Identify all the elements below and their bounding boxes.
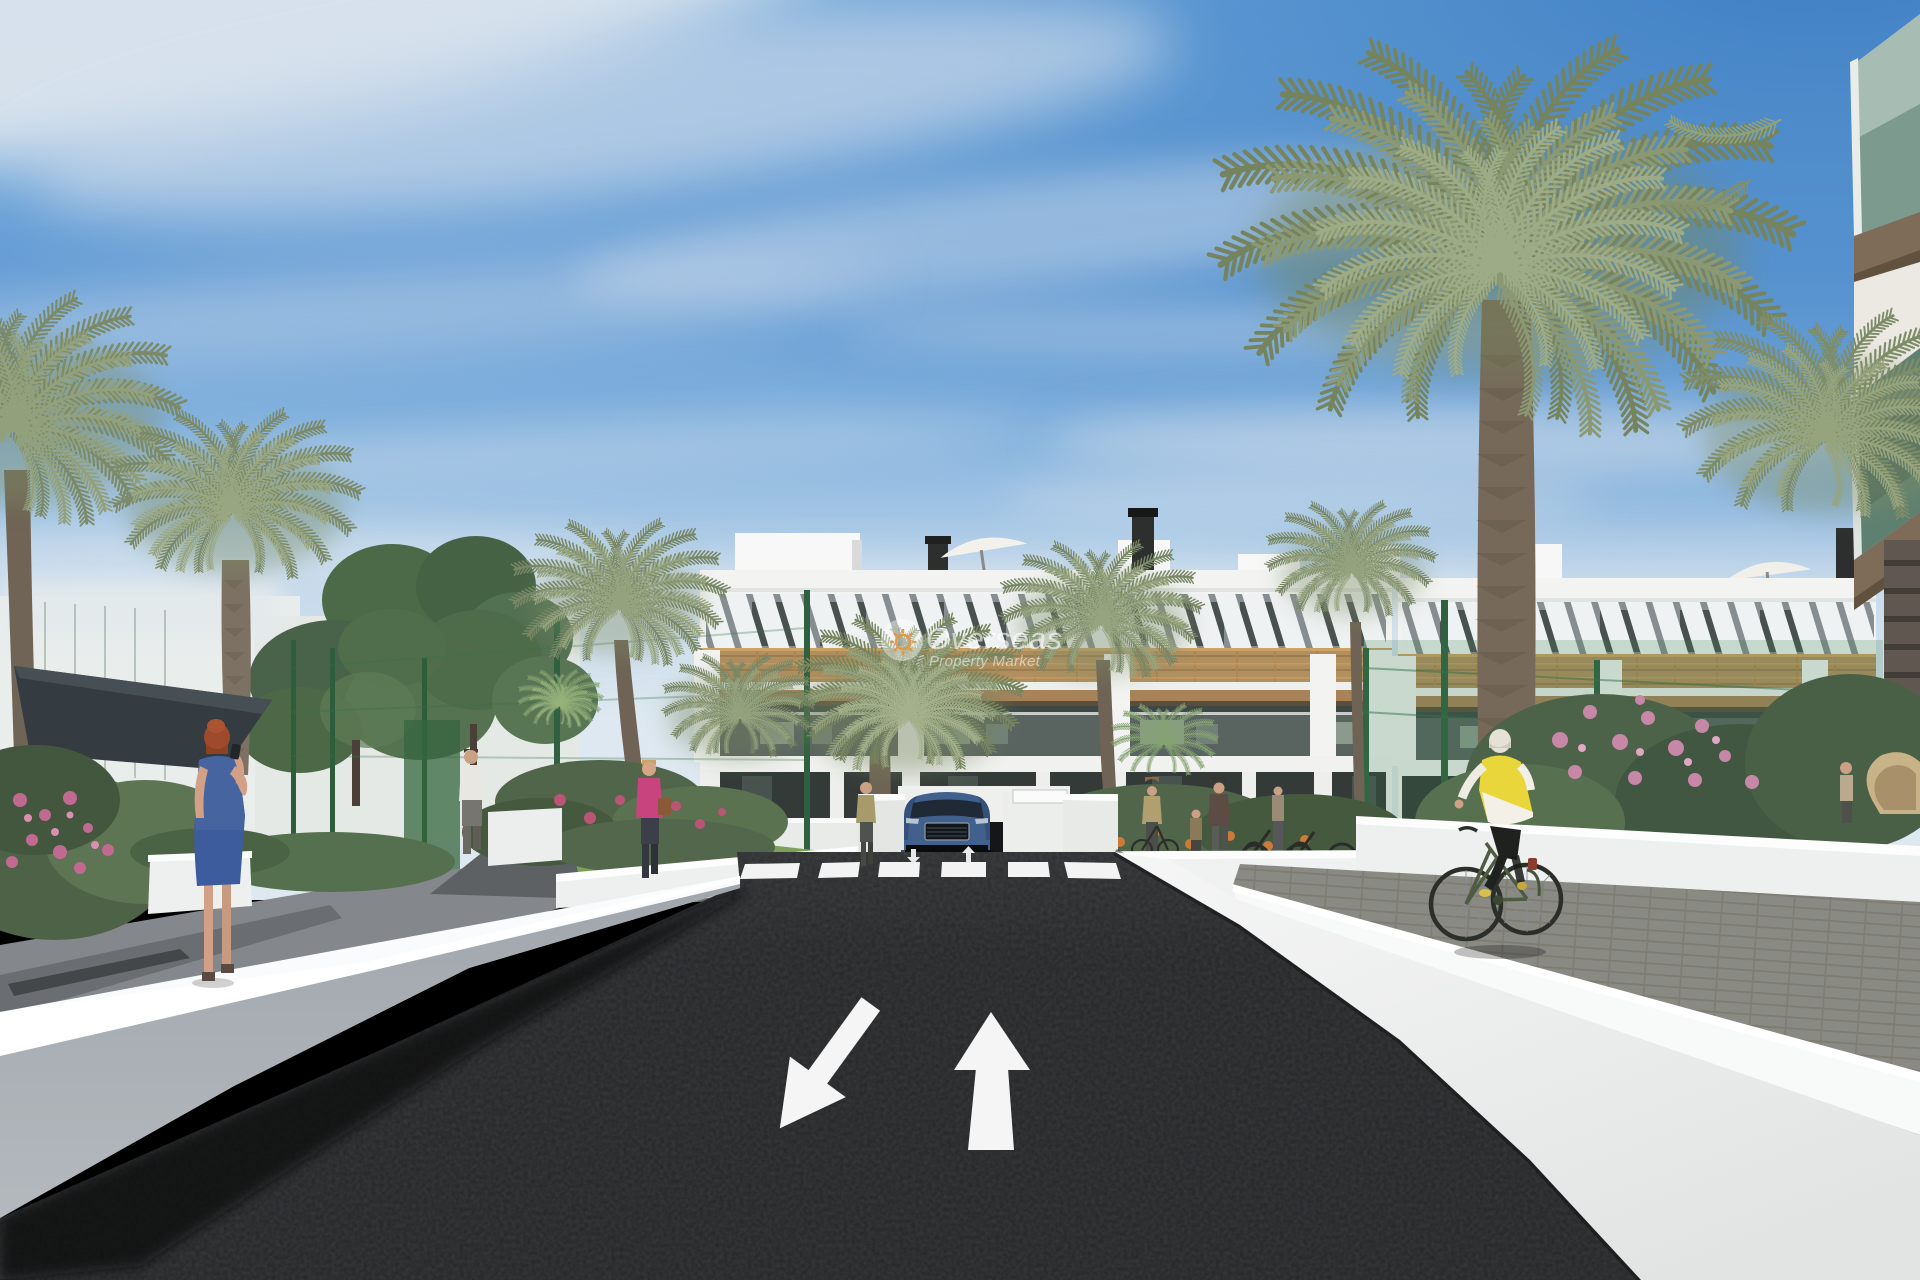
svg-text:Property Market: Property Market [929,653,1041,670]
svg-text:Overseas: Overseas [926,621,1063,656]
